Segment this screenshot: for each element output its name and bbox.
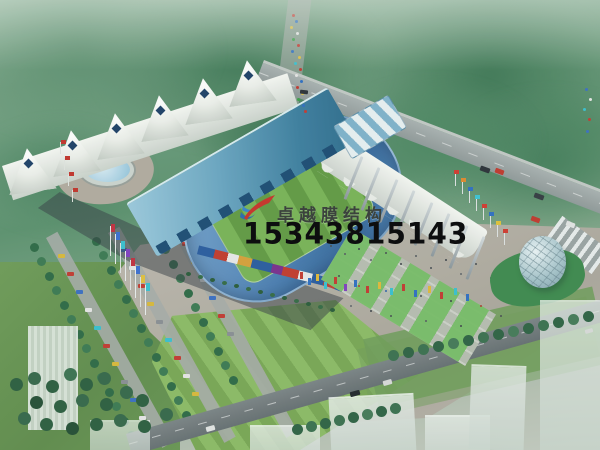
- stadium-aerial-rendering: 卓越膜结构 15343815143: [0, 0, 600, 450]
- watermark-phone-number: 15343815143: [243, 216, 468, 250]
